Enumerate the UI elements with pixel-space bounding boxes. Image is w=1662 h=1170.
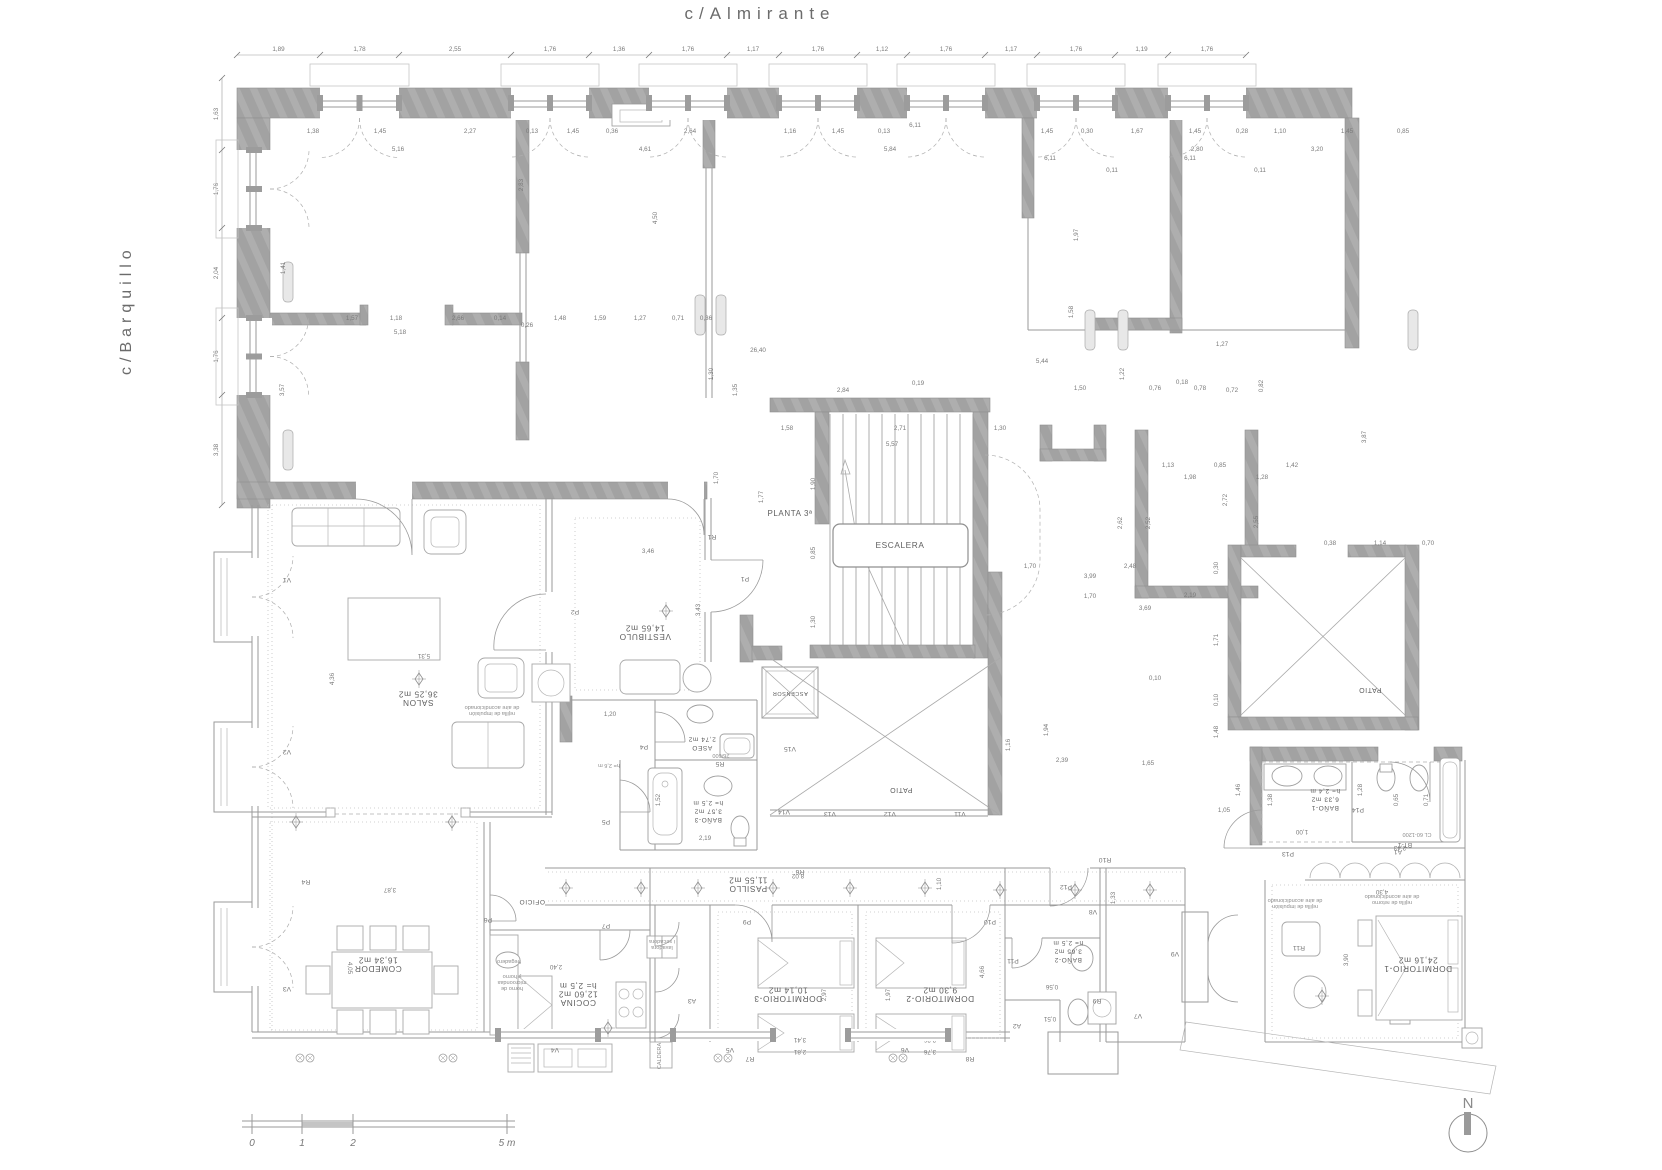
tag-r10: R10 [1099,856,1112,863]
dim-label: 2,40 [549,963,562,970]
balcony-outline [639,64,737,86]
dim-label: 2,66 [452,315,465,322]
sofa [452,722,524,768]
dim-label: 2,84 [837,387,850,394]
dim-label: 1,28 [1256,474,1269,481]
tag-r7: R7 [745,1055,754,1062]
dim-label: 0,85 [1397,128,1410,135]
dim-label: 2,19 [699,835,712,842]
annotation: h= 2,6 m [598,762,620,768]
dim-label: 4,36 [329,672,336,685]
dim-label: 1,05 [1218,807,1231,814]
ac-unit [532,664,570,702]
dim-label: 1,89 [272,46,285,53]
dim-label: 2,19 [1184,592,1197,599]
dim-label: 3,76 [923,1048,936,1055]
tag-v4: V4 [551,1046,560,1053]
tag-v6: V6 [901,1046,910,1053]
nightstand [1358,920,1372,1016]
tag-p4: P4 [640,743,649,750]
room-label-oficio: OFICIO [519,898,545,905]
washbasin [687,705,713,723]
dim-label: 0,26 [521,322,534,329]
tag-v3: V3 [283,985,292,992]
balcony-outline [1027,64,1125,86]
tag-v14: V14 [778,808,790,815]
toilet [1377,764,1395,791]
dim-label: 2,39 [1056,757,1069,764]
tag-p11: P11 [1007,957,1019,964]
round-chair [1294,976,1326,1008]
dim-label: 2,62 [1117,516,1124,529]
dim-label: 0,76 [1149,385,1162,392]
stove [616,982,646,1028]
dim-label: 1,22 [1119,367,1126,380]
dim-label: 1,20 [604,711,617,718]
tag-r11: R11 [1293,944,1305,951]
dim-label: 0,10 [1149,675,1162,682]
dim-label: 1,33 [1110,891,1117,904]
dim-label: 1,71 [1213,633,1220,646]
dim-label: 5,18 [394,329,407,336]
dim-label: 0,14 [494,315,507,322]
dim-label: 2,04 [213,266,220,279]
dim-label: 1,63 [213,107,220,120]
room-label-ba-o-3: BAÑO-33,57 m2h= 2,5 m [693,799,723,825]
dim-label: 1,16 [784,128,797,135]
floor-plan-drawing: 1,891,782,551,761,361,761,171,761,121,76… [0,0,1662,1170]
toilet [731,816,749,846]
tag-r5: R5 [715,760,724,767]
washbasin [704,776,732,796]
tag-a2: A2 [1013,1022,1022,1029]
annotation: rejilla de impulsiónde aire acondicionad… [465,704,520,716]
dim-label: 1,76 [682,46,695,53]
bed-single [876,938,966,988]
dim-label: 1,45 [1041,128,1054,135]
tag-p7: P7 [602,922,611,929]
dim-label: 1,76 [812,46,825,53]
room-label-salon: SALON36,25 m2 [398,690,437,709]
dim-label: 0,11 [1254,167,1266,174]
bay-window [214,552,252,642]
dim-label: 1,30 [708,367,715,380]
annotation: fregadero [497,958,521,964]
balcony-outline [501,64,599,86]
dim-label: 0,18 [1176,379,1189,386]
dim-label: 5,57 [886,441,899,448]
dim-label: 1,45 [832,128,845,135]
dim-label: 1,36 [613,46,626,53]
dim-label: 1,14 [1374,540,1387,547]
door-arc [320,118,360,158]
bathtub [1440,758,1460,842]
dim-label: 1,10 [1274,128,1287,135]
dim-label: 0,19 [912,380,925,387]
tag-v5: V5 [726,1046,735,1053]
dim-label: 1,70 [1084,593,1097,600]
dim-label: 1,30 [994,425,1007,432]
tag-r1: R1 [707,533,716,540]
tag-p5: P5 [602,818,611,825]
door-arc [550,118,589,157]
room-label-patio: PATIO [1359,686,1382,693]
tag-p2: P2 [571,608,580,615]
dim-label: 1,13 [1162,462,1175,469]
balcony-outline [310,64,409,86]
bed-single [758,938,854,988]
dim-label: 3,90 [1343,953,1350,966]
dim-label: 0,36 [700,315,713,322]
dim-label: 1,76 [544,46,557,53]
coffee-table [348,598,440,660]
dim-label: 1,58 [781,425,794,432]
room-label-ba-o-1: BAÑO-16,33 m2h= 2,4 m [1310,787,1340,813]
dim-label: 4,66 [979,965,986,978]
door-arc [779,118,818,157]
dim-label: 1,27 [1216,341,1229,348]
dim-label: 3,57 [279,383,286,396]
dim-label: 3,20 [1311,146,1324,153]
dim-label: 1,76 [213,350,220,363]
dim-label: 0,10 [1213,693,1220,706]
dim-label: 2,71 [894,425,907,432]
dim-label: 1,16 [1005,738,1012,751]
dim-label: 1,41 [280,261,287,274]
dim-label: 5,16 [392,146,405,153]
dim-label: 1,97 [1073,228,1080,241]
room-label-ascensor: ASCENSOR [772,690,808,696]
stair-core [830,414,1040,648]
hall-bench [620,660,711,694]
wall-layer [237,88,1462,845]
dim-label: 1,30 [810,615,817,628]
dim-label: 1,58 [1068,305,1075,318]
dim-label: 1,90 [810,477,817,490]
dim-label: 1,45 [567,128,580,135]
dim-label: 0,56 [1045,983,1058,990]
dim-label: 1,70 [1024,563,1037,570]
dim-label: 1,59 [594,315,607,322]
dim-label: 0,70 [1422,540,1435,547]
dim-label: 0,51 [1043,1015,1056,1022]
dim-label: 1,10 [936,877,943,890]
tag-v12: V12 [884,810,896,817]
dim-label: 1,42 [1286,462,1299,469]
dim-label: 1,28 [1357,783,1364,796]
tag-r8: R8 [965,1055,974,1062]
armchair [478,658,524,698]
dim-label: 4,50 [652,211,659,224]
dim-label: 1,70 [713,471,720,484]
dim-label: 0,13 [878,128,891,135]
dim-label: 0,85 [810,546,817,559]
dim-label: 3,43 [695,603,702,616]
door-arc [1037,118,1076,157]
tag-p6: P6 [484,916,493,923]
door-arc [1076,118,1115,157]
dim-label: 0,65 [1393,793,1400,806]
room-label-vestibulo: VESTIBULO14,65 m2 [619,624,671,643]
floor-plan-canvas: c/Almirante c/Barquillo [0,0,1662,1170]
dim-label: 0,28 [1236,128,1249,135]
dim-label: 1,38 [307,128,320,135]
double-washbasin [1264,764,1346,790]
dim-label: 3,69 [1139,605,1152,612]
dim-label: 1,94 [1043,723,1050,736]
annotation: 26/600 [712,752,729,758]
tag-a1: A1 [1394,848,1403,855]
annotation: rejilla de impulsiónde aire acondicionad… [1268,897,1323,909]
dim-label: 1,65 [1142,760,1155,767]
dim-label: 1,18 [390,315,403,322]
tag-v9: V9 [1171,950,1180,957]
tag-p13: P13 [1282,850,1294,857]
balcony-outline [897,64,995,86]
dim-label: 0,78 [1194,385,1207,392]
annotation: lavadorai secadora [648,938,675,950]
dim-label: 2,55 [449,46,462,53]
tag-r6: R6 [795,868,804,875]
dim-label: 1,46 [1235,783,1242,796]
dim-label: 1,76 [213,182,220,195]
room-label-planta-3-: PLANTA 3ª [767,509,812,518]
dim-label: 3,87 [1361,430,1368,443]
dim-label: 1,45 [1341,128,1354,135]
sofa [292,508,400,546]
tag-p14: P14 [1352,806,1364,813]
dim-label: 26,40 [750,347,766,354]
dim-label: 0,72 [1226,387,1239,394]
bay-window [214,722,252,812]
door-arc [818,118,857,157]
room-label-aseo: ASEO2,74 m2 [688,736,716,752]
room-label-patio: PATIO [890,786,913,793]
room-label-pasillo: PASILLO11,55 m2 [729,876,768,895]
scale-label-1: 1 [299,1138,305,1149]
dim-label: 5,84 [884,146,897,153]
dim-label: 1,97 [885,988,892,1001]
tag-v7: V7 [1134,1012,1143,1019]
dim-label: 1,48 [554,315,567,322]
dim-label: 1,35 [732,383,739,396]
dim-label: 0,85 [1214,462,1227,469]
north-arrow: N [1449,1095,1487,1152]
dim-label: 2,81 [793,1048,806,1055]
dim-label: 2,48 [1124,563,1137,570]
dim-label: 1,77 [758,490,765,503]
tag-v11: V11 [954,810,966,817]
dim-label: 2,27 [464,128,477,135]
dim-label: 4,61 [639,146,652,153]
washer [1088,992,1116,1024]
annotation: rejilla de retornode aire acondicionado [1365,893,1420,905]
dim-label: 3,99 [1084,573,1097,580]
tag-p9: P9 [743,918,752,925]
dim-label: 6,11 [909,122,921,129]
tag-p10: P10 [984,918,996,925]
scale-label-2: 2 [349,1138,356,1149]
dim-label: 4,05 [346,962,353,975]
north-label: N [1463,1095,1474,1112]
balcony-outline [769,64,867,86]
scale-bar: 0 1 2 5 m [242,1114,515,1149]
bathtub [648,768,682,844]
tag-r4: R4 [301,878,310,885]
tag-v13: V13 [824,810,836,817]
dim-label: 1,27 [634,315,647,322]
dim-label: 2,83 [518,178,525,191]
dim-label: 3,41 [793,1036,806,1043]
dim-label: 2,64 [684,128,697,135]
scale-label-5m: 5 m [499,1138,516,1149]
tag-v15: V15 [784,745,796,752]
bay-window [214,902,252,992]
dim-label: 1,76 [940,46,953,53]
door-arc [946,118,985,157]
dim-label: 0,71 [672,315,685,322]
dim-label: 2,80 [1191,146,1204,153]
dim-label: 1,19 [1135,46,1148,53]
dim-label: 1,00 [1295,828,1308,835]
dim-label: 0,13 [526,128,539,135]
dim-label: 0,71 [1423,793,1430,806]
dim-label: 6,11 [1184,155,1196,162]
room-label-escalera: ESCALERA [875,540,924,550]
room-label-comedor: COMEDOR16,34 m2 [354,956,402,975]
dim-label: 0,82 [1258,379,1265,392]
dim-label: 1,98 [1184,474,1197,481]
dim-label: 5,44 [1036,358,1049,365]
dim-label: 1,12 [876,46,889,53]
dim-label: 1,76 [1201,46,1214,53]
dim-label: 2,52 [1145,516,1152,529]
dim-label: 0,11 [1106,167,1118,174]
dim-label: 1,78 [353,46,366,53]
dim-label: 3,87 [383,886,396,893]
annotation: CL 60-1200 [1402,831,1431,837]
scale-label-0: 0 [249,1138,255,1149]
room-label-ba-o-2: BAÑO-23,65 m2h= 2,5 m [1053,939,1083,965]
dim-label: 0,30 [1081,128,1094,135]
dim-label: 1,52 [655,793,662,806]
dim-label: 1,38 [1267,793,1274,806]
dim-label: 1,17 [747,46,760,53]
room-label-cocina: COCINA12,60 m2h= 2,5 m [558,981,597,1008]
dim-label: 1,17 [1005,46,1018,53]
tag-r9: R9 [1092,997,1101,1004]
dim-label: 1,57 [346,315,359,322]
dim-label: 5,31 [417,652,430,659]
dim-label: 0,30 [1213,561,1220,574]
dim-label: 1,67 [1131,128,1144,135]
dim-label: 0,36 [606,128,619,135]
armchair [424,510,466,554]
tag-bt-1: BT-1 [1398,841,1413,848]
dim-label: 1,50 [1074,385,1087,392]
tag-a3: A3 [688,997,697,1004]
dim-label: 3,46 [642,548,655,555]
furniture-layer [283,262,1462,1072]
balcony-outline [1158,64,1256,86]
patio-middle [770,658,1000,815]
dim-label: 3,38 [213,443,220,456]
dim-label: 2,72 [1222,493,1229,506]
door-arc [1207,118,1246,157]
dim-label: 1,45 [374,128,387,135]
tag-p1: P1 [741,575,750,582]
dim-label: 1,76 [1070,46,1083,53]
tag-v8: V8 [1089,908,1098,915]
dim-label: 2,55 [1253,515,1260,528]
dim-label: 1,48 [1213,725,1220,738]
annotation: CALDERA [657,1043,663,1070]
dim-label: 1,45 [1189,128,1202,135]
tag-p12: P12 [1060,883,1072,890]
dim-label: 0,38 [1324,540,1337,547]
